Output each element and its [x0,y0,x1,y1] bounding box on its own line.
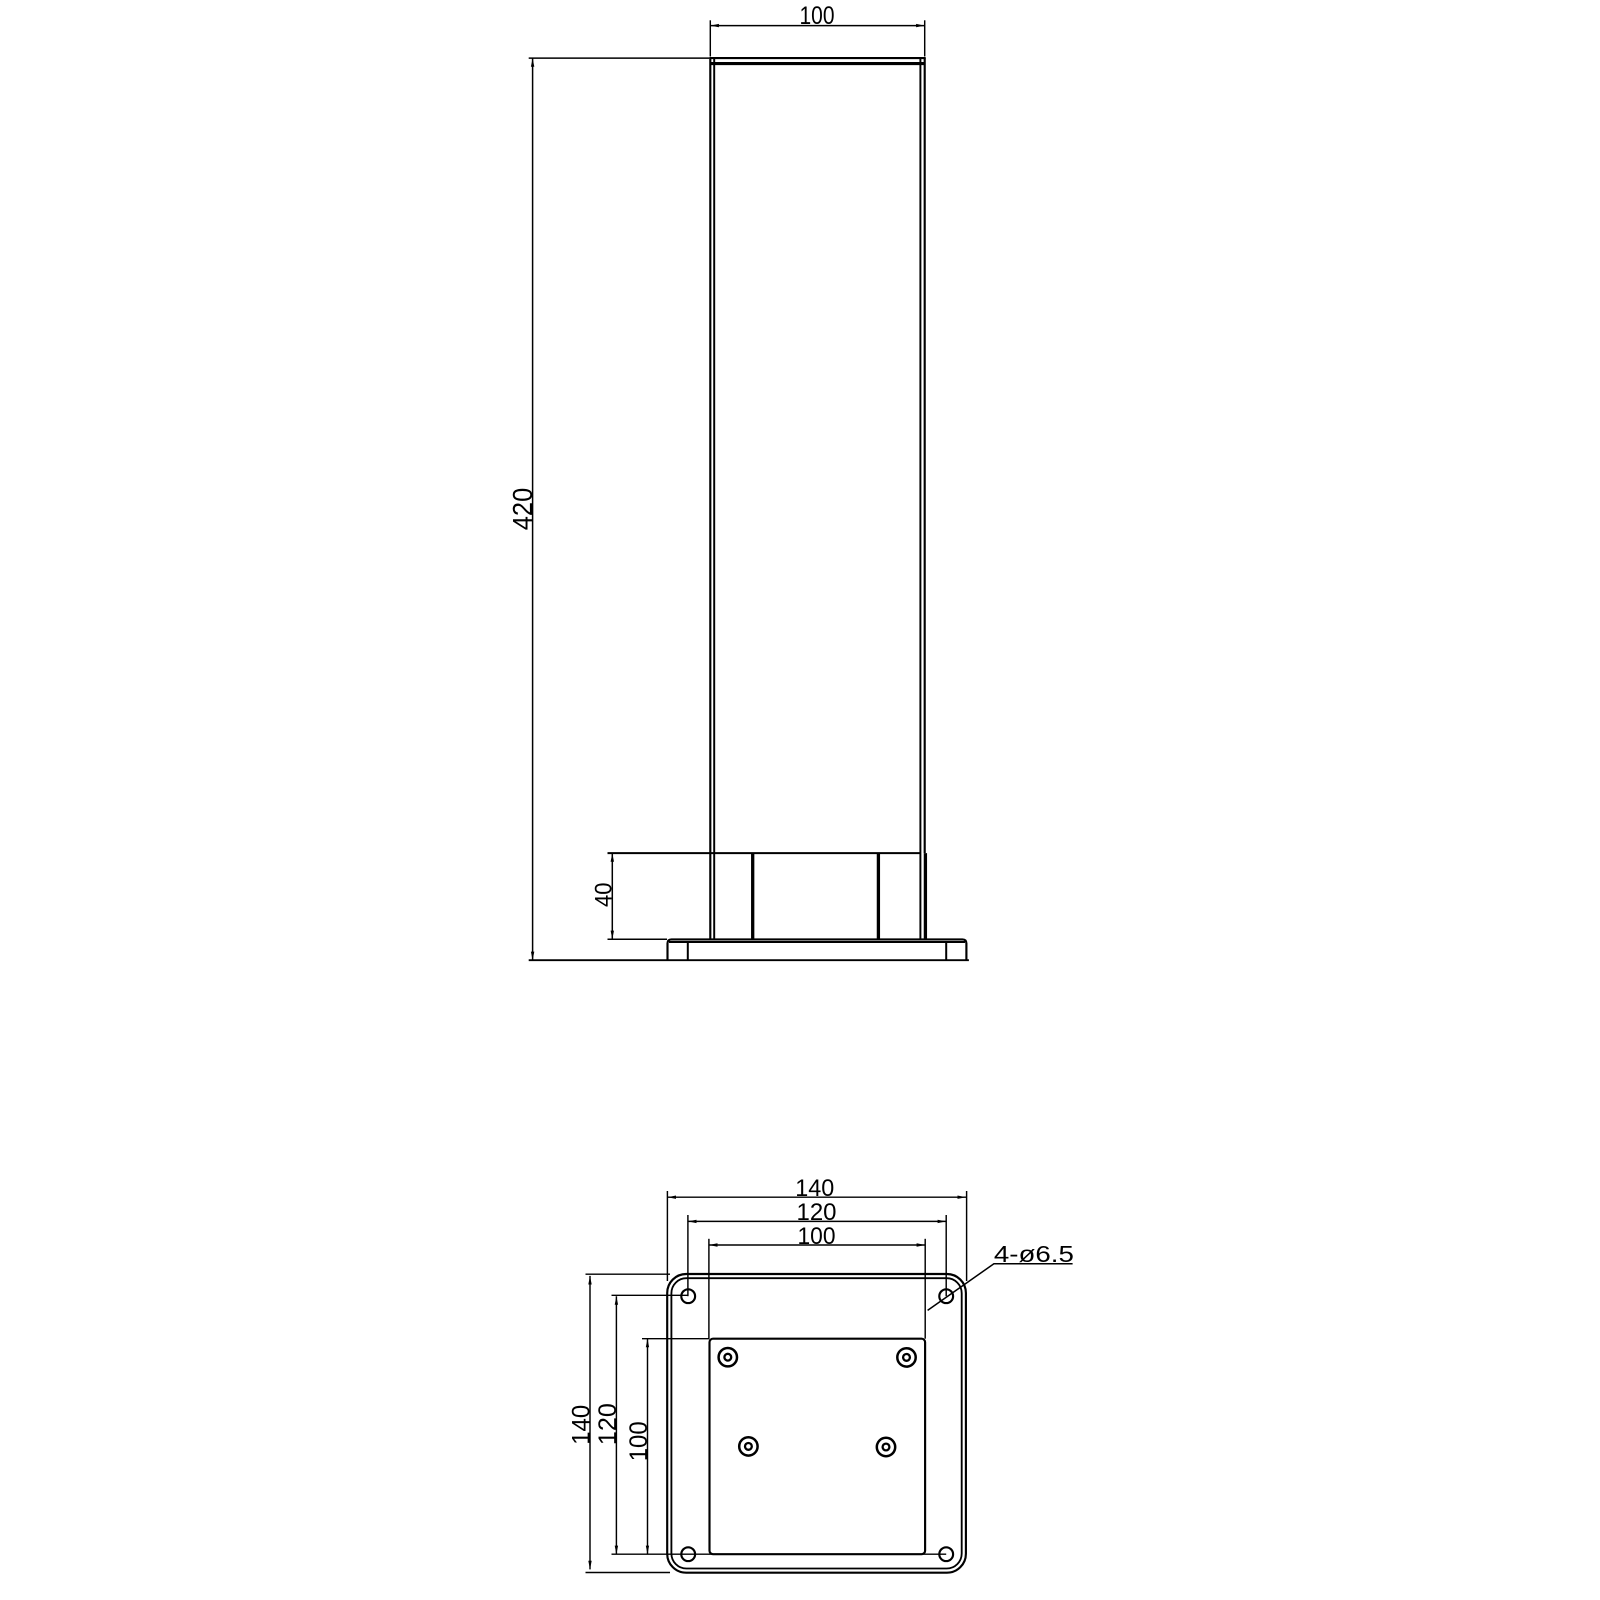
svg-text:4-ø6.5: 4-ø6.5 [994,1241,1074,1267]
svg-text:420: 420 [507,488,538,531]
svg-text:140: 140 [795,1175,834,1202]
svg-text:140: 140 [567,1405,595,1445]
svg-text:100: 100 [625,1421,653,1461]
svg-text:100: 100 [800,2,835,30]
svg-text:40: 40 [591,883,618,908]
svg-text:120: 120 [594,1403,622,1445]
svg-text:100: 100 [798,1223,836,1250]
